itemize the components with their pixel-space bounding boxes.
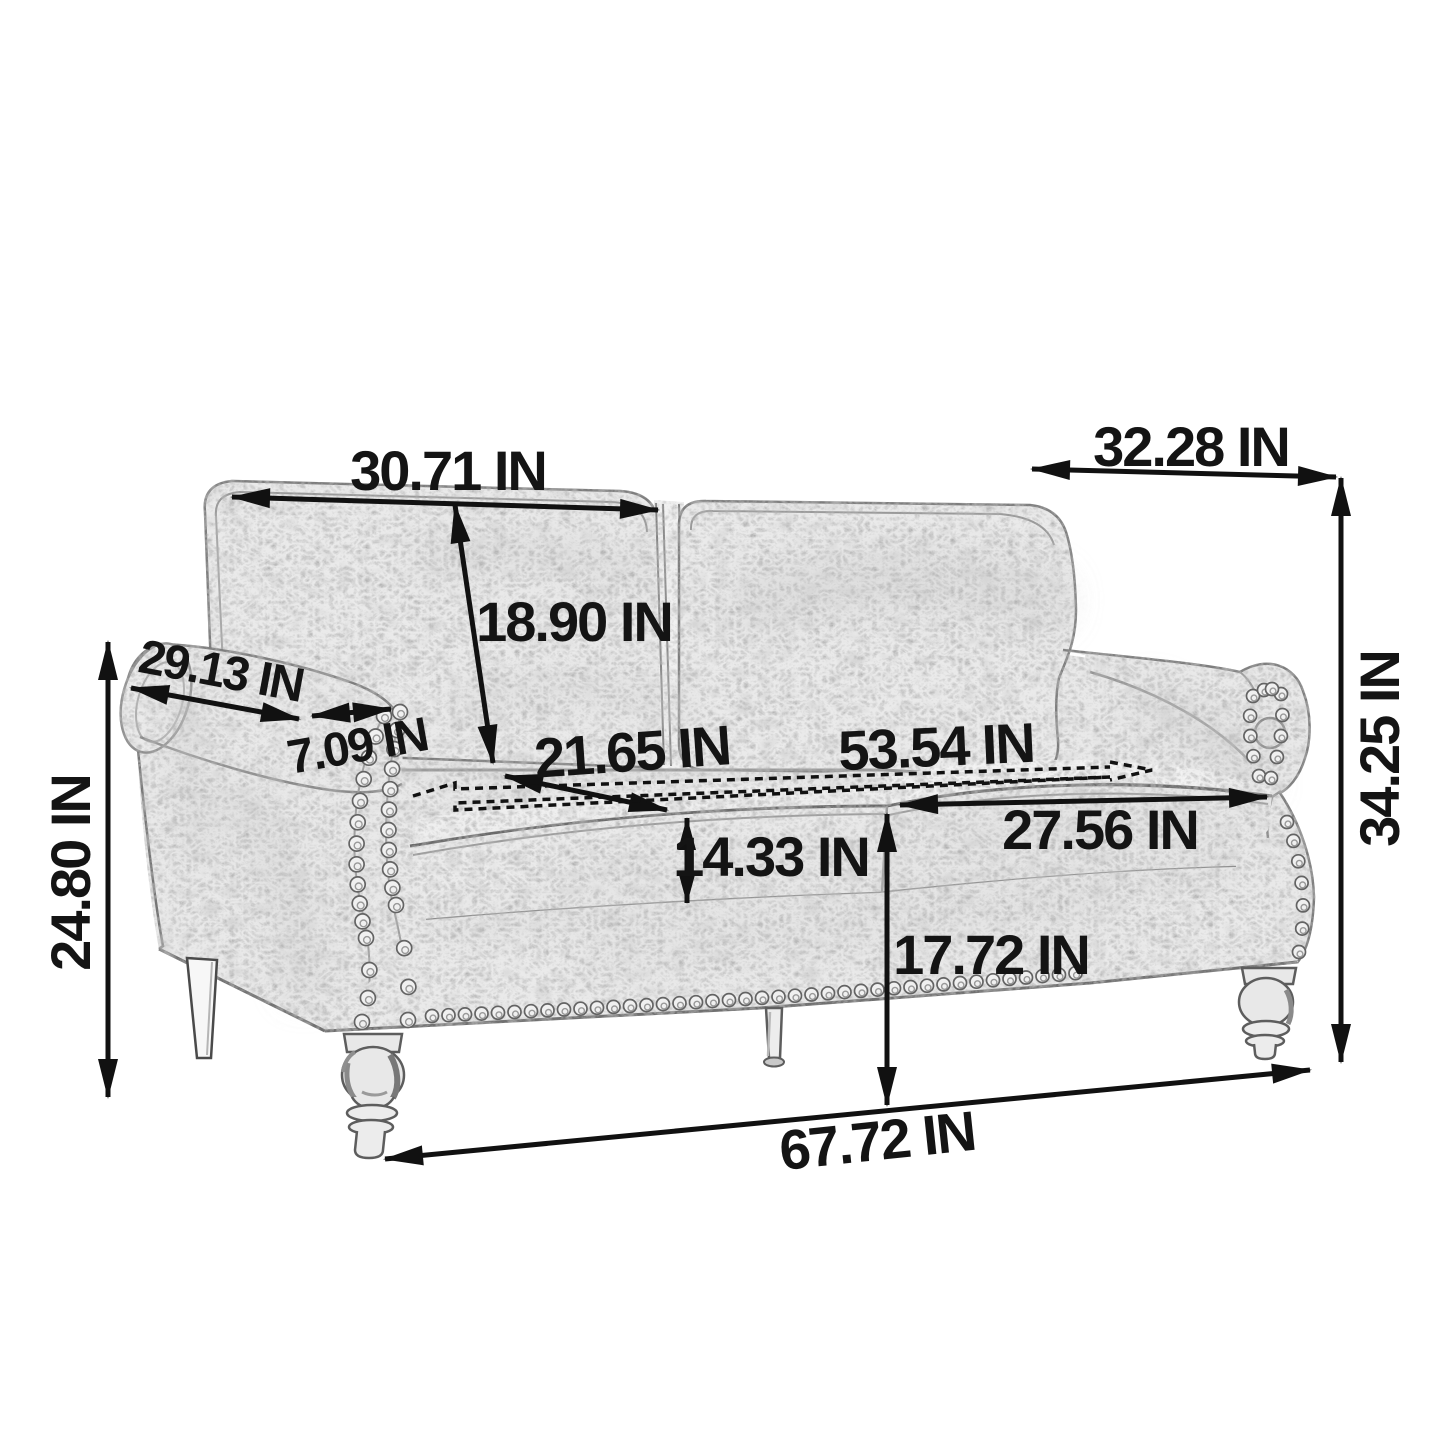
svg-text:32.28 IN: 32.28 IN	[1093, 415, 1289, 478]
svg-text:18.90 IN: 18.90 IN	[476, 590, 672, 653]
svg-text:24.80 IN: 24.80 IN	[39, 775, 102, 971]
svg-text:17.72 IN: 17.72 IN	[893, 923, 1089, 986]
svg-text:53.54 IN: 53.54 IN	[837, 711, 1035, 782]
svg-text:34.25 IN: 34.25 IN	[1348, 651, 1411, 847]
svg-text:14.33 IN: 14.33 IN	[673, 825, 869, 888]
svg-text:27.56 IN: 27.56 IN	[1002, 798, 1198, 861]
svg-text:30.71 IN: 30.71 IN	[350, 439, 546, 502]
